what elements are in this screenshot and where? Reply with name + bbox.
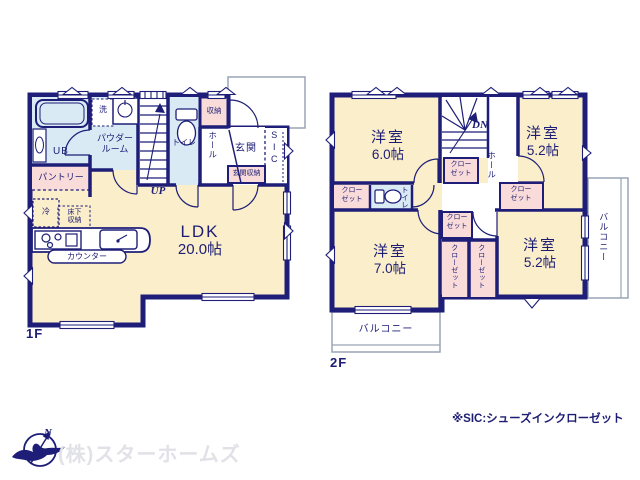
f1-fridge-label: 冷 — [33, 207, 59, 217]
f2-floor-label: 2F — [330, 355, 347, 371]
f1-entrance-storage-label: 玄関収納 — [228, 170, 265, 179]
f1-powder-room-label: パウダールーム — [94, 133, 136, 156]
f1-counter-label: カウンター — [48, 252, 126, 262]
f2-balcony-right-label: バルコニー — [597, 212, 608, 284]
f2-room-ne-area-label: 5.2帖 — [505, 143, 581, 160]
kitchen-sink-icon — [100, 230, 137, 249]
washbasin-icon — [113, 98, 138, 124]
f1-ub-label: UB — [32, 146, 90, 159]
f2-room-se-name-label: 洋室 — [502, 237, 578, 256]
f2-stairs-down-label: DN — [472, 119, 488, 133]
f2-closet-nw-label: クローゼット — [341, 187, 363, 205]
f1-floor-label: 1F — [26, 326, 43, 342]
f1-sic-label: SIC — [268, 130, 279, 182]
f1-entrance-label: 玄関 — [229, 143, 263, 156]
f1-ldk-area-label: 20.0帖 — [140, 241, 260, 260]
f2-room-ne-name-label: 洋室 — [505, 125, 581, 144]
f2-hall-label: ホール — [486, 151, 497, 197]
f2-room-sw-area-label: 7.0帖 — [352, 261, 428, 278]
company-watermark: (株)スターホームズ — [58, 443, 241, 468]
f1-underfloor-storage-label: 床下収納 — [66, 209, 83, 226]
f2-closet-stairs-label: クローゼット — [450, 161, 472, 179]
f1-hall-label: ホール — [207, 131, 218, 177]
f1-toilet-label: トイレ — [168, 138, 200, 148]
toilet-icon-2f — [375, 190, 401, 203]
f2-closet-ne-label: クローゼット — [510, 186, 532, 204]
f1-stairs-up-label: UP — [142, 185, 174, 199]
f1-storage-label: 収納 — [200, 106, 228, 115]
f2-closet-sw-label: クローゼット — [446, 214, 468, 232]
f2-room-nw-name-label: 洋室 — [350, 129, 426, 148]
f2-toilet-label: トイレ — [400, 186, 409, 210]
f2-balcony-bottom-label: バルコニー — [332, 324, 440, 337]
f2-room-se-area-label: 5.2帖 — [502, 255, 578, 272]
kitchen-stove-icon — [35, 231, 81, 249]
kitchen-counter-icon — [32, 228, 150, 252]
f1-ldk-name-label: LDK — [140, 221, 260, 242]
f1-plan — [24, 77, 305, 329]
stairs-up-icon — [140, 103, 168, 180]
compass-north-label: N — [44, 427, 52, 441]
f1-pantry-label: パントリー — [32, 172, 90, 183]
floorplan-image: UB パウダールーム パントリー 洗 冷 床下収納 カウンター LDK 20.0… — [0, 0, 640, 480]
sic-footnote: ※SIC:シューズインクローゼット — [452, 412, 624, 426]
f2-closet-vertical-right-label: クローゼット — [476, 244, 485, 296]
f2-room-nw-area-label: 6.0帖 — [350, 147, 426, 164]
f2-room-sw-name-label: 洋室 — [352, 243, 428, 262]
entrance-porch — [228, 77, 305, 128]
f2-closet-vertical-left-label: クローゼット — [449, 244, 458, 296]
f1-washer-label: 洗 — [92, 105, 114, 115]
